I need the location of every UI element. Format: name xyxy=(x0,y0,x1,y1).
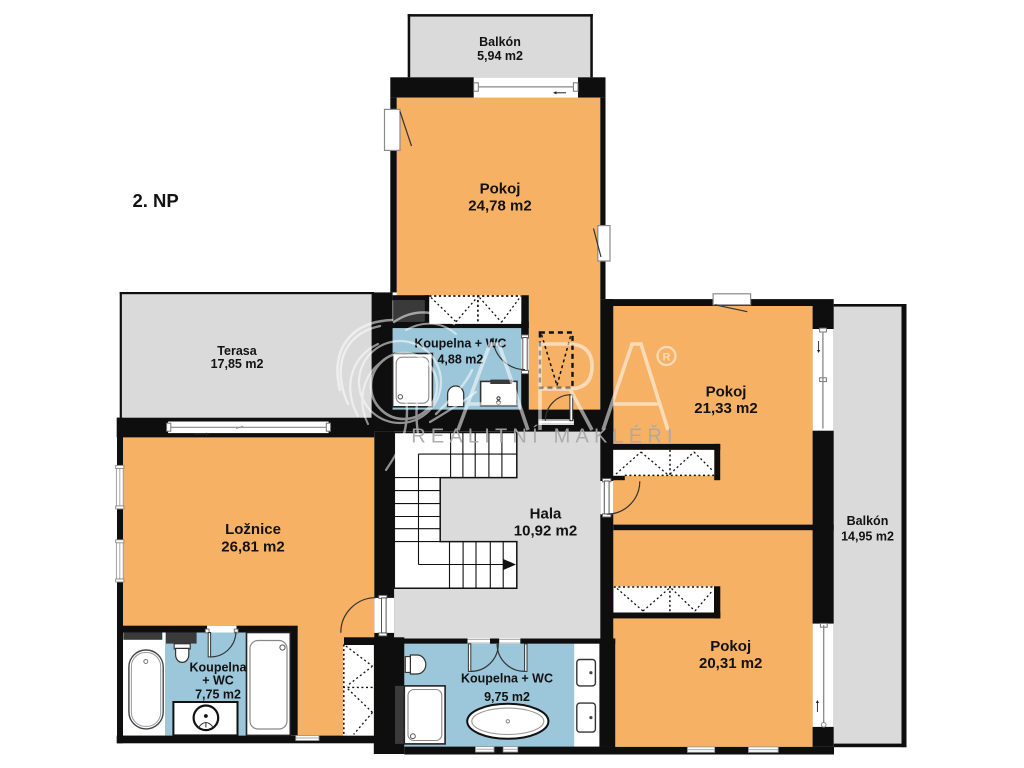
svg-text:10,92 m2: 10,92 m2 xyxy=(514,522,577,539)
svg-text:Pokoj: Pokoj xyxy=(480,181,521,198)
svg-text:7,75 m2: 7,75 m2 xyxy=(195,687,241,701)
svg-text:Pokoj: Pokoj xyxy=(710,638,751,655)
svg-text:4,88 m2: 4,88 m2 xyxy=(437,352,483,366)
svg-text:Balkón: Balkón xyxy=(479,35,521,49)
svg-text:Koupelna: Koupelna xyxy=(190,660,248,674)
svg-text:+ WC: + WC xyxy=(202,673,234,687)
svg-text:Koupelna + WC: Koupelna + WC xyxy=(461,672,553,686)
svg-text:Hala: Hala xyxy=(530,505,562,522)
svg-text:26,81 m2: 26,81 m2 xyxy=(221,539,284,556)
svg-text:REALITNÍ MAKLÉŘI: REALITNÍ MAKLÉŘI xyxy=(411,425,678,448)
svg-text:9,75 m2: 9,75 m2 xyxy=(484,690,530,704)
svg-text:17,85 m2: 17,85 m2 xyxy=(211,357,264,371)
svg-text:Terasa: Terasa xyxy=(217,344,257,358)
svg-text:Pokoj: Pokoj xyxy=(706,384,747,401)
svg-text:5,94 m2: 5,94 m2 xyxy=(477,49,523,63)
svg-text:20,31 m2: 20,31 m2 xyxy=(699,655,762,672)
svg-text:Ložnice: Ložnice xyxy=(225,521,281,538)
svg-text:14,95 m2: 14,95 m2 xyxy=(841,530,894,544)
svg-text:R: R xyxy=(663,352,671,364)
svg-text:Balkón: Balkón xyxy=(847,514,889,528)
svg-text:21,33 m2: 21,33 m2 xyxy=(694,400,757,417)
svg-text:2. NP: 2. NP xyxy=(132,190,178,211)
svg-text:24,78 m2: 24,78 m2 xyxy=(468,198,531,215)
